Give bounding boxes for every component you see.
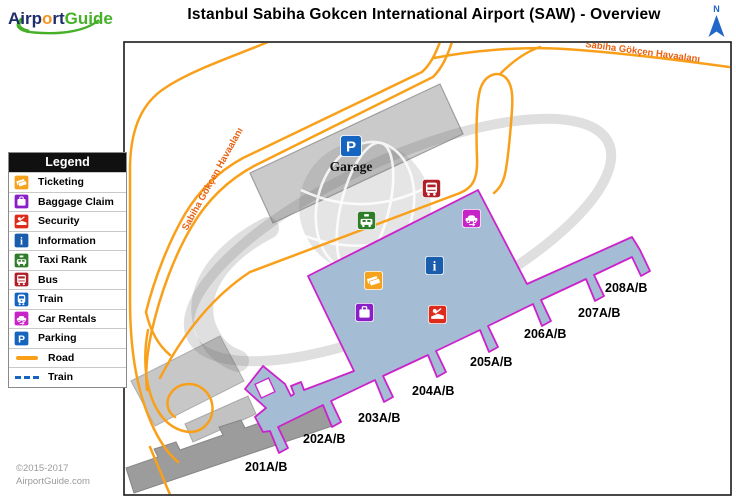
gate-label-206: 206A/B [524,327,566,341]
garage-label: Garage [330,159,373,174]
legend-item-information: Information [9,231,126,251]
svg-text:N: N [713,4,720,14]
copyright: ©2015-2017 AirportGuide.com [16,462,90,488]
gate-label-207: 207A/B [578,306,620,320]
taxi-icon [14,253,29,268]
security-icon [428,305,446,323]
gate-label-203: 203A/B [358,411,400,425]
copyright-site: AirportGuide.com [16,475,90,488]
car-rentals-icon [14,311,29,326]
legend-panel: Legend Ticketing Baggage Claim Security … [8,152,127,388]
baggage-claim-icon [355,303,373,321]
gate-label-205: 205A/B [470,355,512,369]
ticketing-icon [14,175,29,190]
security-icon [14,214,29,229]
bus-icon [422,179,440,197]
baggage-claim-icon [14,194,29,209]
legend-item-car-rentals: Car Rentals [9,309,126,329]
gate-label-208: 208A/B [605,281,647,295]
legend-item-baggage-claim: Baggage Claim [9,192,126,212]
legend-item-ticketing: Ticketing [9,172,126,192]
parking-icon [14,331,29,346]
north-arrow-icon: N [709,4,725,37]
taxi-icon [357,211,375,229]
information-icon [425,256,443,274]
legend-item-parking: Parking [9,328,126,348]
gate-label-202: 202A/B [303,432,345,446]
gate-label-201: 201A/B [245,460,287,474]
car-rentals-icon [462,209,480,227]
copyright-years: ©2015-2017 [16,462,90,475]
legend-item-taxi-rank: Taxi Rank [9,250,126,270]
legend-title: Legend [9,153,126,172]
parking-icon [340,135,361,156]
train-icon [14,292,29,307]
legend-item-road: Road [9,348,126,368]
legend-item-train-line: Train [9,367,126,387]
legend-item-train: Train [9,289,126,309]
road-line-icon [13,350,39,365]
legend-item-bus: Bus [9,270,126,290]
train-line-icon [13,370,39,385]
information-icon [14,233,29,248]
bus-icon [14,272,29,287]
gate-label-204: 204A/B [412,384,454,398]
legend-item-security: Security [9,211,126,231]
airport-map-page: i [0,0,736,503]
ticketing-icon [364,271,382,289]
